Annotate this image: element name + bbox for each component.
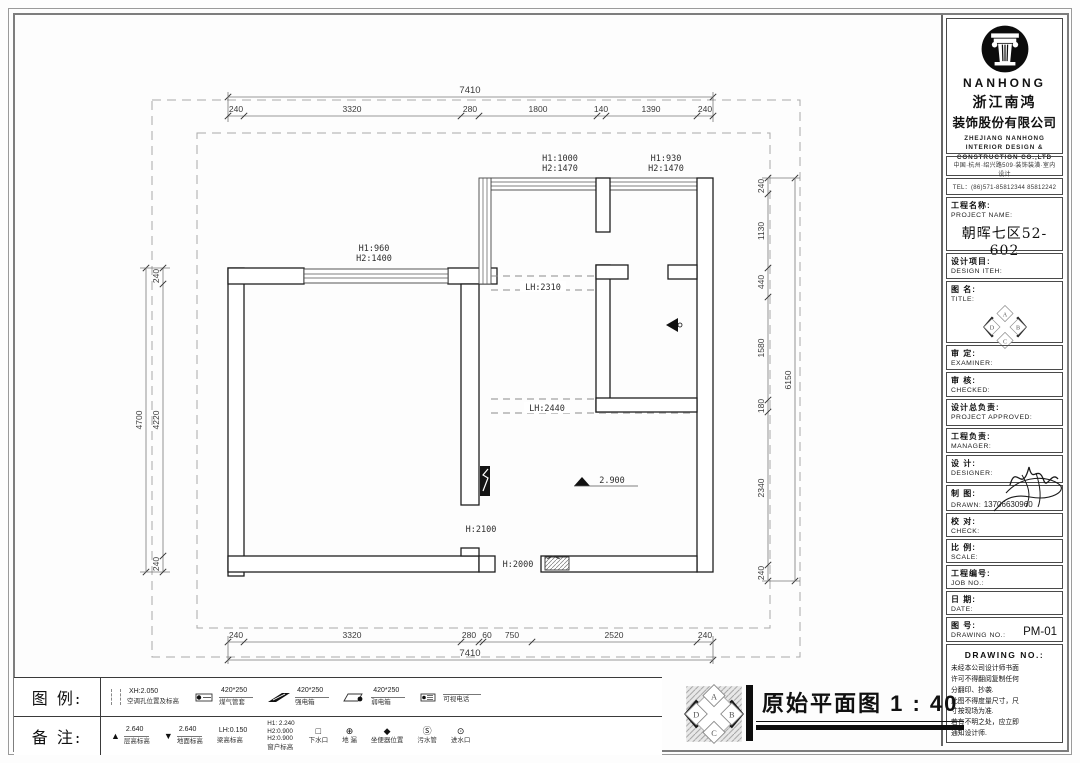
svg-text:240: 240 xyxy=(151,557,161,571)
company-block: NANHONG 浙江南鸿 装饰股份有限公司 ZHEJIANG NANHONG I… xyxy=(946,18,1063,154)
field-scale: 比 例: SCALE: xyxy=(946,539,1063,563)
svg-text:B: B xyxy=(729,710,735,719)
note-sewage-pipe: Ⓢ 污水管 xyxy=(417,727,437,745)
legend-item-gas: 420*250 煤气管套 xyxy=(193,687,253,707)
svg-text:440: 440 xyxy=(756,275,766,289)
nanhong-column-logo xyxy=(979,23,1031,75)
svg-text:240: 240 xyxy=(229,104,243,114)
note-water-inlet: ⊙ 进水口 xyxy=(451,727,471,745)
window-balcony xyxy=(479,178,697,284)
distribution-box-icon xyxy=(545,556,569,570)
strong-electric-box-icon xyxy=(267,691,291,703)
triangle-up-icon: ▲ xyxy=(111,732,120,741)
disclaimer-header: DRAWING NO.: xyxy=(951,650,1058,660)
legend-item-videophone: 可视电话 xyxy=(419,689,481,704)
field-manager: 工程负责: MANAGER: xyxy=(946,428,1063,453)
field-examiner: 审 定: EXAMINER: xyxy=(946,345,1063,370)
plan-symbols: 2.900 xyxy=(480,318,682,570)
note-toilet-position: ◆ 坐便器位置 xyxy=(371,727,404,745)
svg-text:240: 240 xyxy=(756,179,766,193)
svg-text:240: 240 xyxy=(229,630,243,640)
dim-top: 7410 240 3320 280 1800 140 1390 240 xyxy=(225,85,716,122)
svg-text:3320: 3320 xyxy=(343,104,362,114)
notes-row: 备 注: ▲ 2.640 层高标高 ▼ 2.640 地面标高 LH:0.150 xyxy=(14,717,662,755)
drawn-phone-value: 13706630960 xyxy=(984,500,1033,509)
company-name-cn-2: 装饰股份有限公司 xyxy=(951,112,1058,131)
videophone-icon xyxy=(419,691,439,703)
svg-text:280: 280 xyxy=(463,104,477,114)
field-label-en: PROJECT NAME: xyxy=(951,212,1058,219)
abcd-logo: A B C D xyxy=(981,305,1029,349)
beam-label-2: LH:2440 xyxy=(529,404,565,414)
svg-text:750: 750 xyxy=(505,630,519,640)
weak-electric-box-icon xyxy=(343,691,367,703)
win-left-h2: H2:1400 xyxy=(356,254,392,264)
svg-text:6150: 6150 xyxy=(783,370,793,389)
floor-plan: LH:2310 LH:2440 2.900 H1:960 H2 xyxy=(14,14,940,674)
company-tel: TEL：(86)571-85812344 85812242 xyxy=(946,178,1063,195)
win-mid-h2: H2:1470 xyxy=(542,164,578,174)
electric-box-icon xyxy=(480,466,490,496)
svg-text:1130: 1130 xyxy=(756,222,766,241)
svg-text:1800: 1800 xyxy=(529,104,548,114)
triangle-down-icon: ▼ xyxy=(164,732,173,741)
circle-cross-icon: ⊕ xyxy=(346,727,354,736)
field-design-item: 设计项目: DESIGN ITEH: xyxy=(946,253,1063,279)
valve-icon xyxy=(666,318,682,332)
diamond-icon: ◆ xyxy=(384,727,391,736)
abcd-logo-footer: A B C D xyxy=(684,684,744,744)
svg-text:3320: 3320 xyxy=(343,630,362,640)
note-floor-height: ▲ 2.640 层高标高 xyxy=(111,726,150,746)
win-right-h2: H2:1470 xyxy=(648,164,684,174)
svg-text:D: D xyxy=(693,710,699,719)
ac-hole-icon xyxy=(111,689,121,705)
svg-text:1390: 1390 xyxy=(642,104,661,114)
svg-text:4700: 4700 xyxy=(134,410,144,429)
gas-pipe-icon xyxy=(193,691,215,703)
field-designer: 设 计: DESIGNER: xyxy=(946,455,1063,483)
svg-text:4220: 4220 xyxy=(151,410,161,429)
svg-text:2520: 2520 xyxy=(605,630,624,640)
beam-label-1: LH:2310 xyxy=(525,283,561,293)
company-address: 中国·杭州·绍兴路509·装饰装潢·室内设计 xyxy=(946,156,1063,176)
small-room xyxy=(596,265,697,412)
field-date: 日 期: DATE: xyxy=(946,591,1063,615)
svg-text:C: C xyxy=(711,729,717,738)
win-left-h1: H1:960 xyxy=(359,244,390,254)
drawing-title-block: A B C D 原始平面图 1 : 40 xyxy=(684,684,964,744)
svg-text:240: 240 xyxy=(151,269,161,283)
field-title: 图 名: TITLE: A B C D xyxy=(946,281,1063,343)
height-labels: H1:960 H2:1400 H1:1000 H2:1470 H1:930 H2… xyxy=(356,154,684,570)
walls xyxy=(228,178,713,576)
note-ground-level: ▼ 2.640 地面标高 xyxy=(164,726,203,746)
svg-text:B: B xyxy=(1015,326,1019,332)
title-divider-bar xyxy=(746,685,753,741)
svg-text:D: D xyxy=(989,326,994,332)
company-name-cn-1: 浙江南鸿 xyxy=(951,92,1058,112)
win-right-h1: H1:930 xyxy=(651,154,682,164)
note-window-level: H1: 2.240 H2:0.900 H2:0.900 窗户标高 xyxy=(267,720,294,753)
svg-text:A: A xyxy=(711,693,717,702)
legend-item-strong-box: 420*250 强电箱 xyxy=(267,687,329,707)
field-project-name: 工程名称: PROJECT NAME: 朝晖七区52-602 xyxy=(946,197,1063,251)
dim-bottom: 240 3320 280 60 750 2520 240 7410 xyxy=(225,630,716,664)
svg-text:7410: 7410 xyxy=(459,648,480,659)
svg-text:A: A xyxy=(1002,313,1007,319)
square-icon: □ xyxy=(316,727,321,736)
field-drawn: 制 图: DRAWN: 13706630960 xyxy=(946,485,1063,511)
door-h-label-1: H:2100 xyxy=(466,525,497,535)
svg-text:240: 240 xyxy=(698,104,712,114)
notes-row-label: 备 注: xyxy=(14,717,101,755)
company-logo-word: NANHONG xyxy=(951,76,1058,90)
field-drawing-no: 图 号: DRAWING NO.: PM-01 xyxy=(946,617,1063,642)
dim-right: 240 1130 440 1580 180 2340 240 6150 xyxy=(756,175,800,584)
svg-text:1580: 1580 xyxy=(756,338,766,357)
field-check: 校 对: CHECK: xyxy=(946,513,1063,537)
svg-text:180: 180 xyxy=(756,399,766,413)
circle-dot-icon: ⊙ xyxy=(457,727,465,736)
beams: LH:2310 LH:2440 xyxy=(491,276,695,414)
svg-text:2340: 2340 xyxy=(756,478,766,497)
circle-s-icon: Ⓢ xyxy=(423,727,432,736)
drawing-title: 原始平面图 1 : 40 xyxy=(756,684,964,721)
svg-text:240: 240 xyxy=(698,630,712,640)
win-mid-h1: H1:1000 xyxy=(542,154,578,164)
field-project-approved: 设计总负责: PROJECT APPROVED: xyxy=(946,399,1063,426)
field-checked: 审 核: CHECKED: xyxy=(946,372,1063,397)
note-beam-level: LH:0.150 梁高标高 xyxy=(217,727,253,746)
svg-text:280: 280 xyxy=(462,630,476,640)
legend-row-label: 图 例: xyxy=(14,678,101,716)
field-label-cn: 工程名称: xyxy=(951,200,1058,211)
drawing-no-value: PM-01 xyxy=(1023,626,1057,638)
note-drain-outlet: □ 下水口 xyxy=(309,727,329,745)
svg-text:60: 60 xyxy=(482,630,492,640)
elevation-label: 2.900 xyxy=(599,476,625,486)
title-block: NANHONG 浙江南鸿 装饰股份有限公司 ZHEJIANG NANHONG I… xyxy=(941,15,1066,746)
svg-text:140: 140 xyxy=(594,104,608,114)
legend-item-ac-hole: XH:2.050 空调孔位置及标高 xyxy=(111,688,179,707)
legend-table: 图 例: XH:2.050 空调孔位置及标高 420*250 煤气管套 xyxy=(14,677,662,755)
svg-text:240: 240 xyxy=(756,566,766,580)
legend-row: 图 例: XH:2.050 空调孔位置及标高 420*250 煤气管套 xyxy=(14,678,662,717)
note-floor-drain: ⊕ 地 漏 xyxy=(342,727,357,745)
window-left xyxy=(304,269,448,283)
field-job-no: 工程编号: JOB NO.: xyxy=(946,565,1063,589)
door-h-label-2: H:2000 xyxy=(503,560,534,570)
svg-text:7410: 7410 xyxy=(459,85,480,96)
elevation-marker: 2.900 xyxy=(574,476,638,486)
legend-item-weak-box: 420*250 弱电箱 xyxy=(343,687,405,707)
